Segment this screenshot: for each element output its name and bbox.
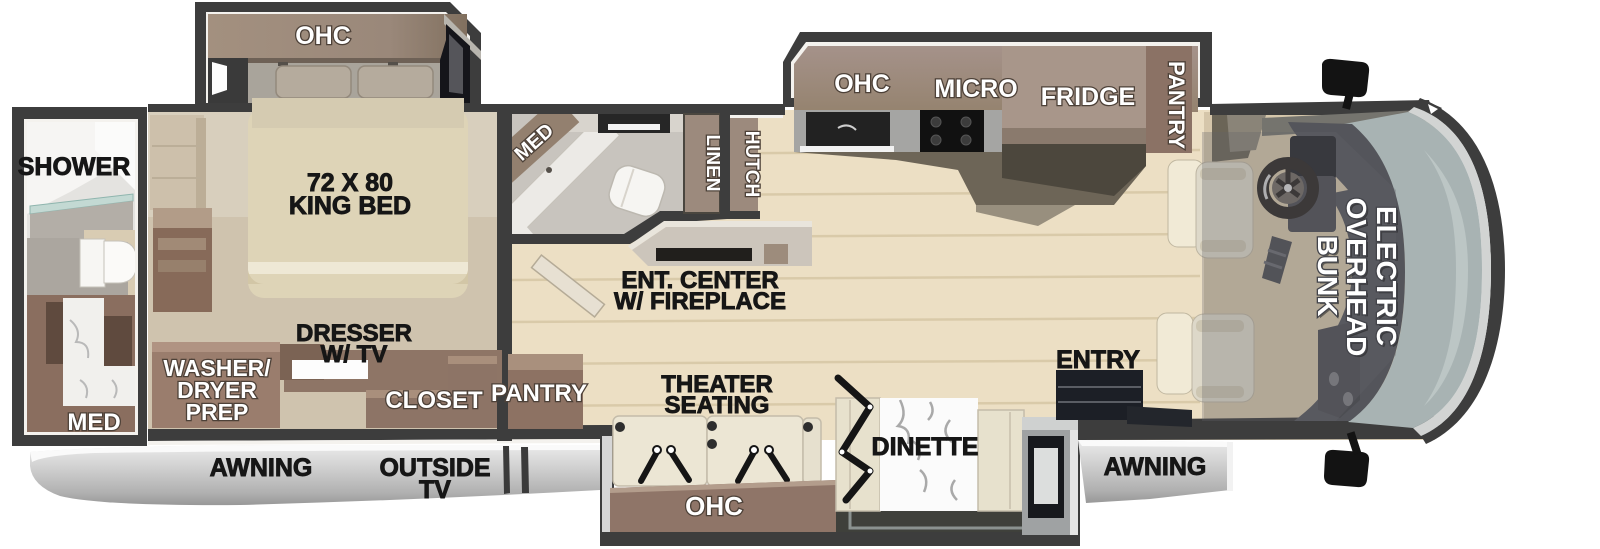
svg-text:OHC: OHC [685, 491, 743, 521]
svg-text:OHC: OHC [834, 70, 890, 98]
svg-text:W/ TV: W/ TV [321, 341, 388, 368]
svg-text:HUTCH: HUTCH [741, 131, 762, 198]
svg-text:CLOSET: CLOSET [385, 387, 483, 414]
svg-text:AWNING: AWNING [1104, 453, 1207, 481]
svg-text:MICRO: MICRO [934, 75, 1017, 103]
svg-text:PANTRY: PANTRY [1164, 61, 1189, 149]
svg-text:PREP: PREP [186, 399, 249, 425]
svg-text:DINETTE: DINETTE [872, 433, 979, 461]
svg-text:MED: MED [67, 409, 120, 436]
svg-text:ENTRY: ENTRY [1056, 346, 1140, 374]
svg-text:OVERHEAD: OVERHEAD [1341, 198, 1372, 357]
svg-text:FRIDGE: FRIDGE [1041, 83, 1135, 111]
svg-text:KING BED: KING BED [289, 192, 411, 220]
svg-text:SHOWER: SHOWER [18, 153, 131, 181]
svg-text:BUNK: BUNK [1312, 236, 1343, 317]
svg-text:AWNING: AWNING [210, 454, 313, 482]
svg-text:TV: TV [419, 476, 451, 504]
svg-text:SEATING: SEATING [665, 392, 770, 419]
svg-text:OHC: OHC [295, 22, 351, 50]
svg-text:PANTRY: PANTRY [491, 380, 587, 407]
svg-text:ELECTRIC: ELECTRIC [1371, 206, 1402, 346]
svg-text:W/ FIREPLACE: W/ FIREPLACE [614, 288, 786, 315]
svg-text:LINEN: LINEN [702, 135, 723, 192]
